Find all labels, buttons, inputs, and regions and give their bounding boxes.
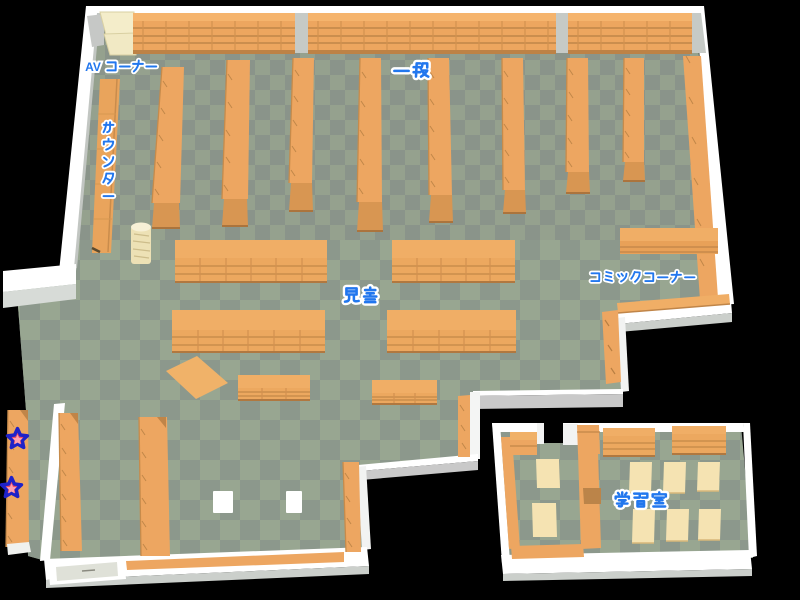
svg-text:AV: AV (85, 60, 101, 74)
